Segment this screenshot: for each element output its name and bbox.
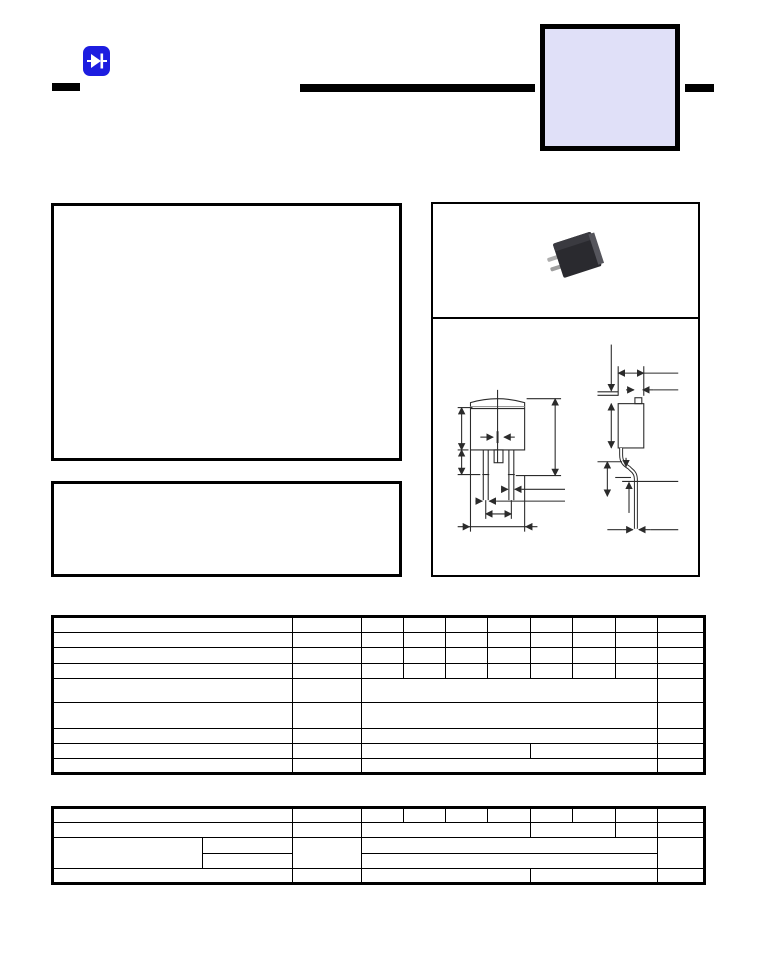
table-cell — [488, 617, 531, 633]
table-cell — [293, 633, 362, 648]
table-cell — [658, 633, 705, 648]
table-cell — [446, 617, 488, 633]
table-cell — [53, 808, 293, 823]
table-cell — [53, 633, 293, 648]
table-cell — [616, 664, 658, 679]
table-cell — [293, 838, 362, 869]
table-cell — [658, 703, 705, 729]
table-cell — [293, 744, 362, 759]
table-cell — [658, 729, 705, 744]
table-cell — [531, 633, 573, 648]
table-cell — [53, 648, 293, 664]
table-cell — [531, 617, 573, 633]
table-cell — [53, 744, 293, 759]
table-cell — [53, 838, 203, 869]
table-cell — [658, 823, 705, 838]
table-cell — [362, 617, 404, 633]
table-cell — [446, 664, 488, 679]
front-view-drawing — [458, 390, 565, 532]
table-cell — [362, 823, 531, 838]
table-cell — [293, 869, 362, 884]
table-cell — [573, 633, 616, 648]
table-cell — [616, 823, 658, 838]
table-cell — [488, 808, 531, 823]
table-cell — [293, 703, 362, 729]
table-cell — [531, 823, 616, 838]
table-cell — [573, 617, 616, 633]
table-cell — [573, 664, 616, 679]
table-cell — [531, 664, 573, 679]
package-panel — [431, 202, 700, 577]
table-cell — [531, 648, 573, 664]
table-cell — [658, 679, 705, 703]
table-cell — [446, 633, 488, 648]
table-cell — [53, 729, 293, 744]
table-cell — [293, 664, 362, 679]
table-cell — [362, 759, 658, 774]
part-number-box — [540, 24, 680, 151]
table-cell — [362, 703, 658, 729]
header-left-bar — [52, 83, 80, 91]
table-cell — [658, 617, 705, 633]
table-cell — [404, 648, 446, 664]
table-cell — [573, 648, 616, 664]
table-cell — [531, 869, 658, 884]
table-cell — [53, 664, 293, 679]
table-cell — [293, 679, 362, 703]
table-cell — [362, 869, 531, 884]
table-cell — [404, 808, 446, 823]
features-box — [51, 203, 402, 461]
table-cell — [293, 648, 362, 664]
table-cell — [362, 633, 404, 648]
table-cell — [362, 648, 404, 664]
table-cell — [53, 703, 293, 729]
table-cell — [203, 838, 293, 854]
table-cell — [573, 808, 616, 823]
table-cell — [293, 729, 362, 744]
header-right-bar — [685, 84, 714, 92]
table-cell — [362, 838, 658, 854]
table-cell — [362, 679, 658, 703]
table-cell — [404, 633, 446, 648]
table-cell — [53, 823, 293, 838]
table-cell — [531, 744, 658, 759]
dpak-package-photo — [433, 204, 698, 317]
table-cell — [616, 617, 658, 633]
table-cell — [658, 838, 705, 869]
table-cell — [362, 744, 531, 759]
table-cell — [362, 664, 404, 679]
table-cell — [53, 617, 293, 633]
table-cell — [616, 648, 658, 664]
table-cell — [488, 664, 531, 679]
table-cell — [362, 808, 404, 823]
table-cell — [531, 808, 573, 823]
table-cell — [362, 854, 658, 869]
table-cell — [658, 744, 705, 759]
table-cell — [293, 808, 362, 823]
description-box — [51, 481, 402, 577]
table-cell — [404, 664, 446, 679]
table-cell — [488, 648, 531, 664]
table-cell — [658, 808, 705, 823]
table-cell — [293, 823, 362, 838]
maximum-ratings-table-grid — [51, 615, 706, 775]
diode-icon — [83, 46, 110, 76]
table-cell — [658, 759, 705, 774]
table-cell — [53, 759, 293, 774]
table-cell — [658, 648, 705, 664]
table-cell — [616, 808, 658, 823]
table-cell — [446, 808, 488, 823]
table-cell — [404, 617, 446, 633]
table-cell — [53, 869, 293, 884]
diode-icon-glyph — [83, 46, 110, 76]
table-cell — [293, 617, 362, 633]
datasheet-page — [0, 0, 770, 974]
table-cell — [203, 854, 293, 869]
side-view-drawing — [598, 345, 679, 530]
table-cell — [293, 759, 362, 774]
table-cell — [488, 633, 531, 648]
table-cell — [446, 648, 488, 664]
characteristics-table-grid — [51, 806, 706, 885]
characteristics-table — [51, 806, 706, 885]
table-cell — [616, 633, 658, 648]
header-center-rule — [300, 84, 535, 92]
table-cell — [658, 664, 705, 679]
table-cell — [53, 679, 293, 703]
table-cell — [658, 869, 705, 884]
table-cell — [362, 729, 658, 744]
maximum-ratings-table — [51, 615, 706, 775]
package-outline-dimension-drawing — [433, 317, 698, 573]
